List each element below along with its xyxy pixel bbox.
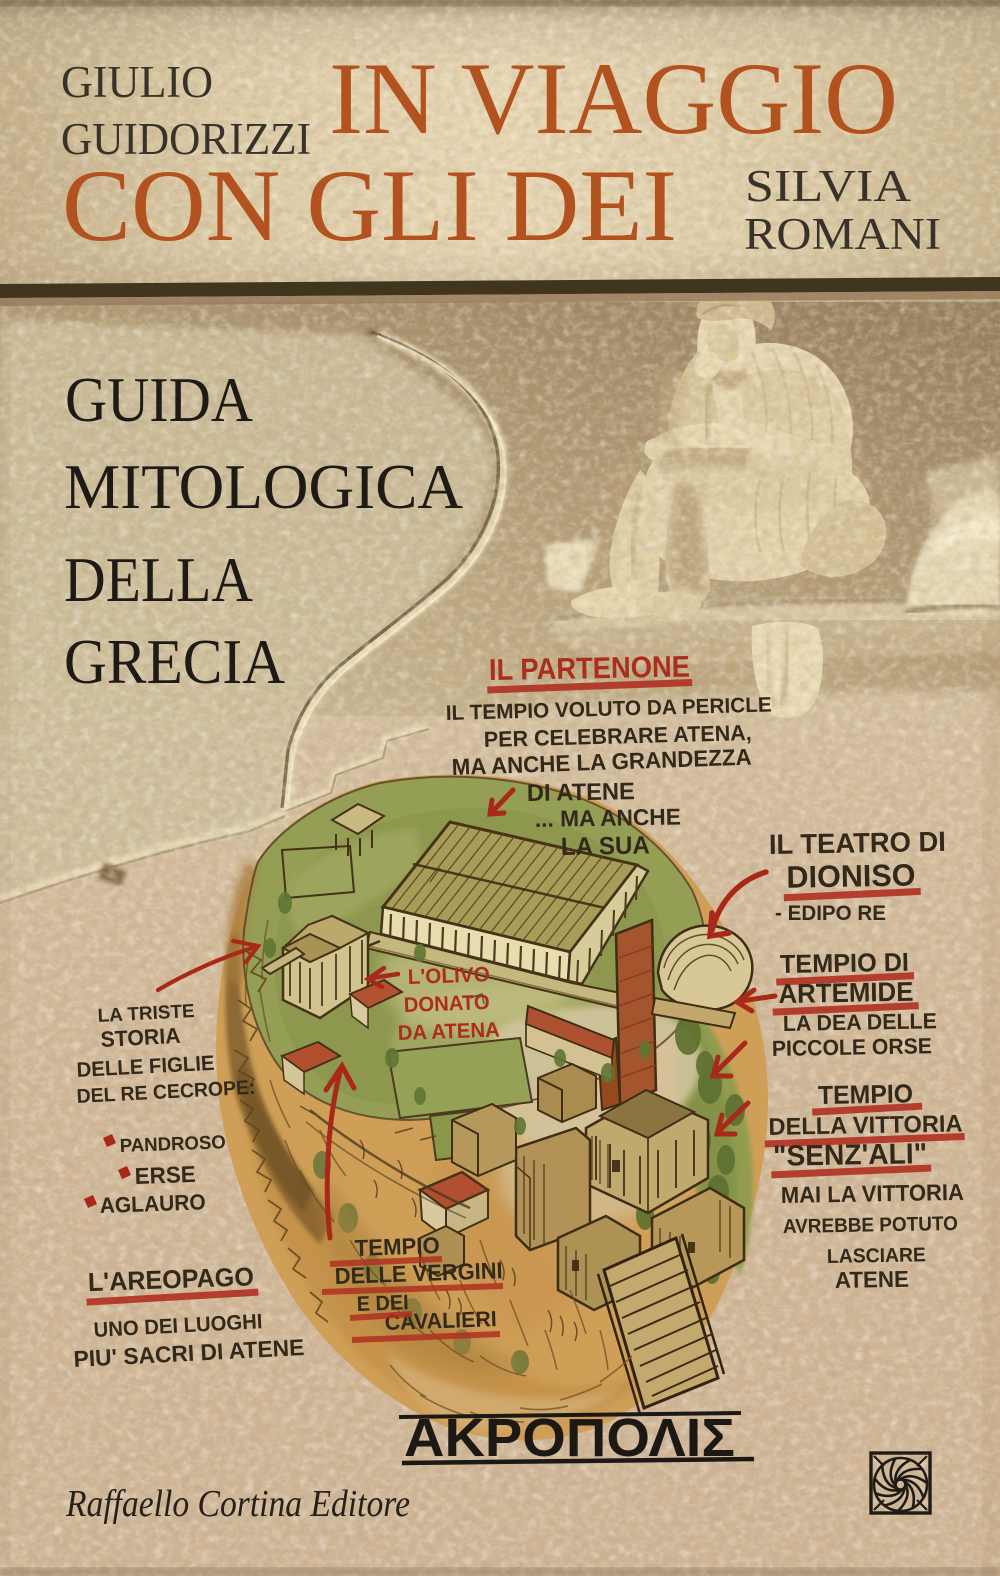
svg-text:IL TEATRO DI: IL TEATRO DI [769,826,947,860]
svg-text:AVREBBE POTUTO: AVREBBE POTUTO [783,1213,958,1238]
svg-text:AGLAURO: AGLAURO [99,1189,206,1218]
svg-text:DELLA: DELLA [64,545,253,615]
svg-text:CON GLI DEI: CON GLI DEI [62,149,677,263]
svg-text:... MA ANCHE: ... MA ANCHE [535,803,681,832]
svg-text:SILVIA: SILVIA [745,161,912,211]
svg-text:MAI LA VITTORIA: MAI LA VITTORIA [781,1179,964,1208]
svg-text:GUIDA: GUIDA [65,365,253,435]
svg-text:TEMPIO: TEMPIO [354,1232,440,1261]
svg-text:L'OLIVO: L'OLIVO [407,963,490,989]
svg-text:ATENE: ATENE [835,1266,909,1293]
svg-text:STORIA: STORIA [100,1023,181,1052]
svg-text:MITOLOGICA: MITOLOGICA [64,452,464,522]
svg-text:ERSE: ERSE [134,1161,196,1189]
svg-text:LASCIARE: LASCIARE [827,1244,926,1268]
svg-text:LA DEA DELLE: LA DEA DELLE [783,1008,937,1036]
svg-text:ROMANI: ROMANI [744,209,941,259]
svg-text:GRECIA: GRECIA [64,627,285,697]
svg-text:CAVALIERI: CAVALIERI [384,1306,497,1335]
svg-text:GIULIO: GIULIO [61,57,213,107]
svg-text:LA SUA: LA SUA [561,831,650,861]
svg-text:IN VIAGGIO: IN VIAGGIO [329,42,898,156]
svg-text:DONATO: DONATO [403,991,490,1017]
svg-text:DI ATENE: DI ATENE [527,778,635,807]
svg-text:Raffaello Cortina Editore: Raffaello Cortina Editore [65,1483,410,1525]
svg-text:DA ATENA: DA ATENA [397,1018,500,1045]
svg-text:PANDROSO: PANDROSO [119,1132,226,1157]
svg-text:- EDIPO RE: - EDIPO RE [775,902,886,925]
svg-text:PICCOLE ORSE: PICCOLE ORSE [772,1033,932,1061]
